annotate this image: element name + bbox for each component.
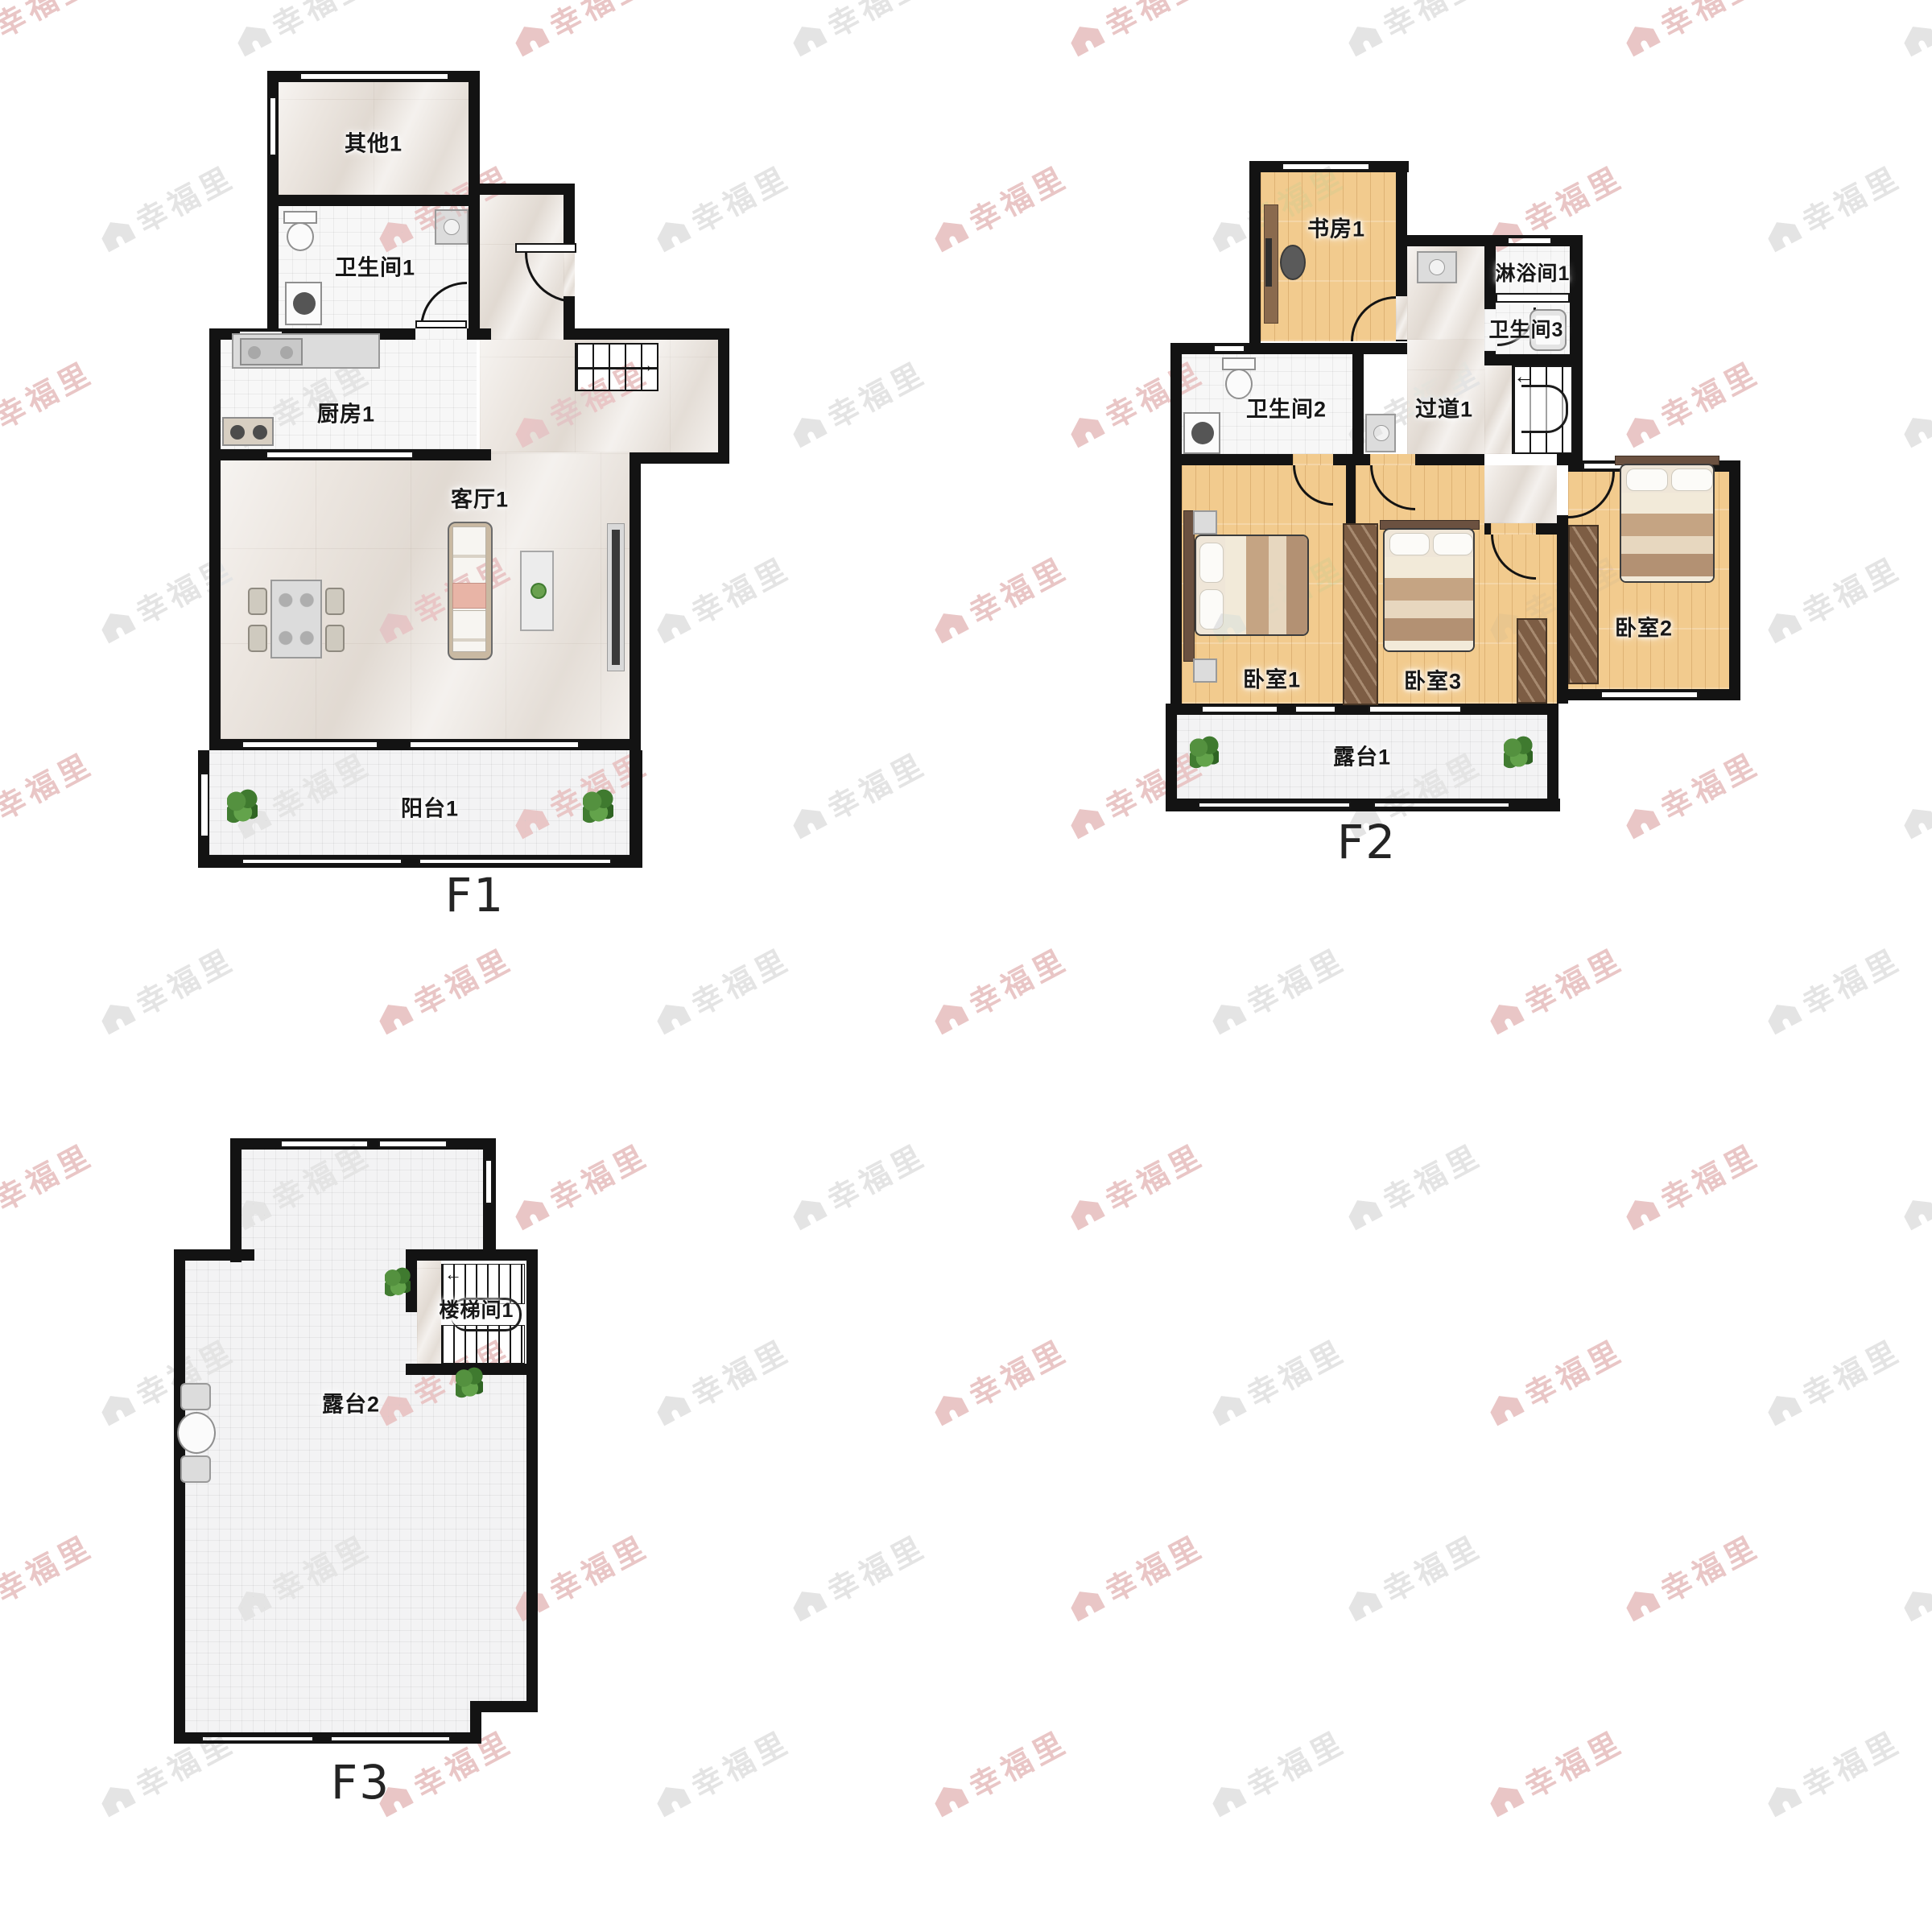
window [378,1140,448,1148]
room-label-living1: 客厅1 [451,482,509,514]
wall-segment [230,1150,242,1262]
window [485,1159,493,1204]
floor-label-f1: F1 [445,868,505,923]
room-label-stairwell1: 楼梯间1 [440,1294,514,1323]
stair-arrow-icon: ← [1513,364,1534,389]
room-label-bath1: 卫生间1 [335,250,415,282]
floor-label-f3: F3 [331,1755,390,1810]
plant-icon [385,1267,411,1298]
room-label-hallway1: 过道1 [1415,392,1473,423]
room-label-balcony1: 阳台1 [401,791,459,823]
room-label-bed1: 卧室1 [1243,663,1301,694]
window [280,1140,369,1148]
window [201,1736,314,1742]
room-label-bath3: 卫生间3 [1489,314,1564,343]
outdoor-chair [180,1455,211,1483]
room-label-shower1: 淋浴间1 [1496,258,1571,287]
wall-segment [174,1249,254,1261]
stairwell-landing [417,1261,441,1364]
window [330,1736,451,1742]
outside-patch [481,1712,538,1744]
stair-arrow-icon: ← [444,1264,462,1285]
plant-icon [456,1367,483,1399]
round-table [177,1412,216,1454]
room-label-bath2: 卫生间2 [1246,392,1327,423]
room-label-study1: 书房1 [1307,212,1365,243]
room-label-terrace2: 露台2 [322,1387,380,1418]
terrace2-upper-floor [242,1150,483,1261]
outdoor-chair [180,1383,211,1410]
wall-segment [406,1249,538,1261]
wall-segment [526,1249,538,1712]
floorplan-canvas: → [0,0,1932,1932]
floor-f3: ← 楼梯间1 露台2 F3 [0,0,1932,1932]
room-label-other1: 其他1 [345,126,402,158]
room-label-terrace1: 露台1 [1333,740,1391,771]
stair-arrow-icon: → [634,353,655,378]
room-label-bed3: 卧室3 [1404,664,1462,696]
floor-label-f2: F2 [1337,815,1397,869]
room-label-kitchen1: 厨房1 [317,397,375,428]
room-label-bed2: 卧室2 [1615,611,1673,642]
wall-segment [174,1249,185,1744]
